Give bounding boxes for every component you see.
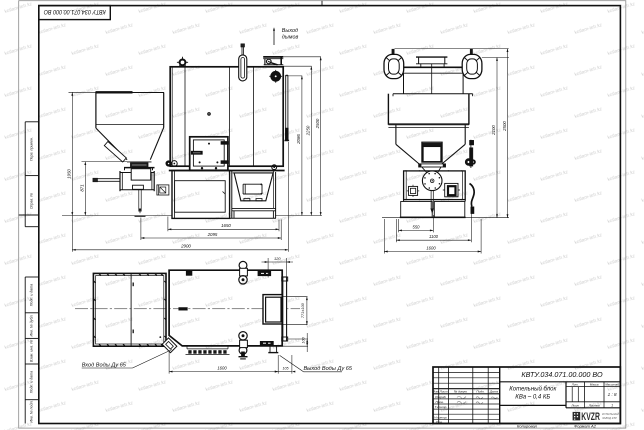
svg-text:771±100: 771±100	[301, 302, 305, 318]
svg-text:Формат А2: Формат А2	[574, 424, 597, 429]
svg-text:ЗАВОД КЗР: ЗАВОД КЗР	[602, 416, 617, 420]
svg-text:Утв.: Утв.	[436, 420, 443, 424]
svg-text:№ докум.: № докум.	[454, 390, 468, 394]
svg-text:1 : 8: 1 : 8	[608, 392, 617, 397]
svg-text:Подп. и дата: Подп. и дата	[30, 284, 34, 307]
svg-text:Котельный блок: Котельный блок	[509, 386, 557, 393]
svg-text:Т.контр.: Т.контр.	[435, 405, 448, 409]
svg-text:120: 120	[274, 256, 281, 261]
svg-text:Инв. № дубл.: Инв. № дубл.	[30, 314, 34, 336]
svg-text:Вход Воды Ду 65: Вход Воды Ду 65	[82, 362, 127, 368]
svg-text:КВТУ.034.071.00.000 ВО: КВТУ.034.071.00.000 ВО	[521, 370, 603, 379]
svg-text:Дата: Дата	[489, 390, 498, 394]
svg-text:Лист: Лист	[570, 403, 579, 407]
svg-text:Лист: Лист	[439, 390, 448, 394]
svg-text:Н.контр.: Н.контр.	[434, 415, 447, 419]
svg-text:100: 100	[302, 336, 306, 343]
svg-text:Изм: Изм	[433, 390, 440, 394]
svg-text:Разраб.: Разраб.	[435, 395, 446, 399]
svg-text:1600: 1600	[217, 366, 227, 371]
svg-text:Подп. и дата: Подп. и дата	[30, 371, 34, 394]
svg-text:Подп.: Подп.	[476, 390, 484, 394]
svg-text:КВа – 0,4 КБ: КВа – 0,4 КБ	[515, 395, 550, 401]
svg-text:Листов: Листов	[588, 403, 600, 407]
svg-text:2100: 2100	[491, 125, 496, 136]
svg-text:Лит.: Лит.	[571, 383, 579, 387]
svg-text:Масштаб: Масштаб	[605, 383, 619, 387]
svg-text:Копировал: Копировал	[517, 424, 538, 429]
svg-text:Выход: Выход	[282, 28, 298, 34]
svg-text:2095: 2095	[207, 232, 218, 237]
svg-text:2250: 2250	[306, 125, 311, 136]
svg-text:1600: 1600	[426, 245, 436, 250]
svg-text:1950: 1950	[67, 169, 72, 179]
svg-text:2900: 2900	[180, 244, 191, 249]
svg-text:1100: 1100	[429, 234, 439, 239]
svg-text:2500: 2500	[315, 118, 320, 129]
svg-text:1650: 1650	[221, 223, 231, 228]
svg-text:Инв. № подл.: Инв. № подл.	[30, 400, 34, 422]
svg-text:Масса: Масса	[590, 383, 599, 387]
svg-text:550: 550	[413, 224, 421, 229]
svg-text:1: 1	[611, 403, 613, 407]
svg-text:Выход Воды Ду 65: Выход Воды Ду 65	[304, 366, 353, 372]
svg-text:871: 871	[80, 184, 85, 192]
svg-text:Пров.: Пров.	[436, 400, 444, 404]
svg-text:Перв. примен.: Перв. примен.	[30, 137, 34, 161]
svg-text:Взам. инв. №: Взам. инв. №	[30, 340, 34, 362]
svg-text:Справ. №: Справ. №	[30, 193, 34, 209]
svg-text:KVZR: KVZR	[581, 411, 600, 423]
svg-text:дымов: дымов	[282, 35, 299, 41]
svg-text:2086: 2086	[296, 134, 301, 145]
svg-text:КОТЕЛЬНЫЙ: КОТЕЛЬНЫЙ	[602, 412, 619, 416]
svg-text:КВТУ 034.071.00.000 ВО: КВТУ 034.071.00.000 ВО	[44, 8, 106, 15]
svg-text:2500: 2500	[502, 121, 507, 132]
svg-text:105: 105	[283, 367, 289, 371]
